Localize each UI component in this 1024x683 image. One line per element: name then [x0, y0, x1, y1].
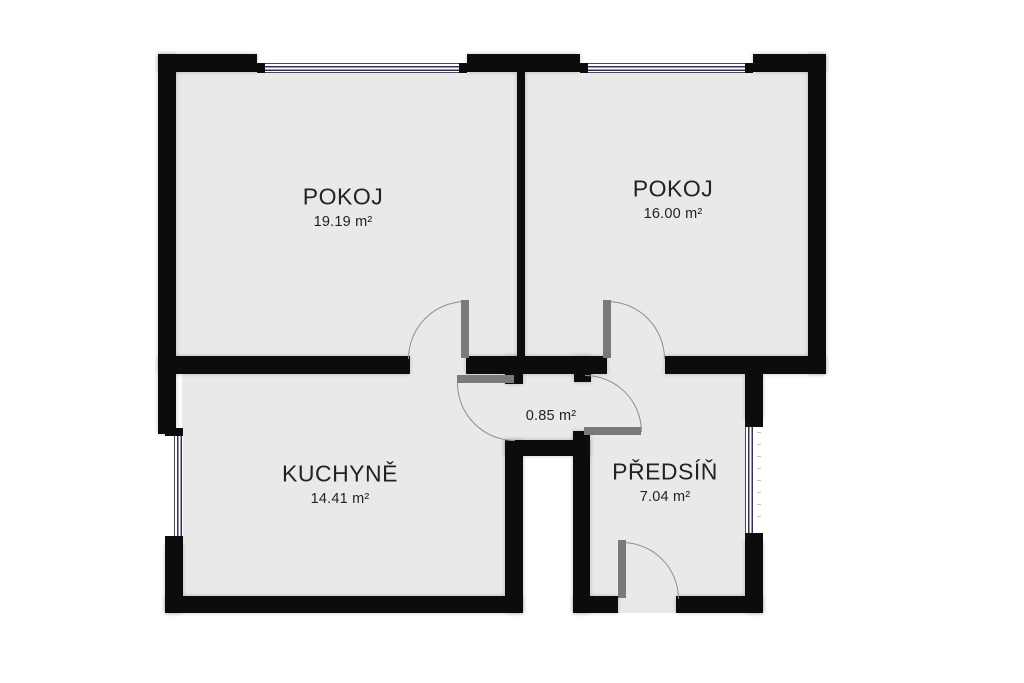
- window-jamb: [745, 63, 753, 73]
- wall-predsin-right-lower: [745, 541, 763, 613]
- window-kuchyne: [174, 436, 183, 536]
- wall-kuchyne-right: [505, 440, 523, 613]
- window-jamb: [745, 533, 763, 541]
- window-pokoj-right: [580, 63, 753, 73]
- room-label-predsin: PŘEDSÍŇ: [612, 459, 718, 486]
- wall-left-upper: [158, 54, 176, 434]
- floor-pokoj-right: [517, 71, 811, 374]
- window-jamb: [459, 63, 467, 73]
- wall-mid-band-right: [665, 356, 826, 374]
- wall-right-upper: [808, 54, 826, 374]
- door-leaf-pokoj-right: [603, 300, 611, 358]
- door-leaf-predsin-inner: [584, 427, 641, 435]
- wall-predsin-right-upper: [745, 374, 763, 419]
- wall-mid-band-left: [158, 356, 410, 374]
- room-area-pokoj-left: 19.19 m²: [314, 214, 373, 230]
- window-jamb: [257, 63, 265, 73]
- window-jamb: [580, 63, 588, 73]
- room-area-kuchyne: 14.41 m²: [311, 491, 370, 507]
- window-jamb: [745, 419, 763, 427]
- door-leaf-kuchyne: [457, 375, 514, 383]
- room-label-kuchyne: KUCHYNĚ: [282, 461, 398, 488]
- window-predsin: [745, 427, 754, 533]
- room-label-pokoj-right: POKOJ: [633, 176, 713, 203]
- room-area-predsin: 7.04 m²: [640, 489, 691, 505]
- room-label-pokoj-left: POKOJ: [303, 184, 383, 211]
- window-jamb: [165, 428, 183, 436]
- wall-top-mid: [467, 54, 580, 72]
- door-leaf-pokoj-left: [461, 300, 469, 358]
- window-pokoj-left: [257, 63, 467, 73]
- wall-partition-pokoj: [517, 71, 525, 356]
- door-leaf-entry: [618, 540, 626, 598]
- room-area-vestibule: 0.85 m²: [526, 408, 577, 424]
- window-jamb: [165, 536, 183, 544]
- room-area-pokoj-right: 16.00 m²: [644, 206, 703, 222]
- floor-plan: POKOJ 19.19 m² POKOJ 16.00 m² KUCHYNĚ 14…: [0, 0, 1024, 683]
- window-tick-marks: [757, 432, 761, 528]
- wall-predsin-left: [573, 431, 590, 613]
- wall-bottom-kuchyne: [165, 596, 523, 613]
